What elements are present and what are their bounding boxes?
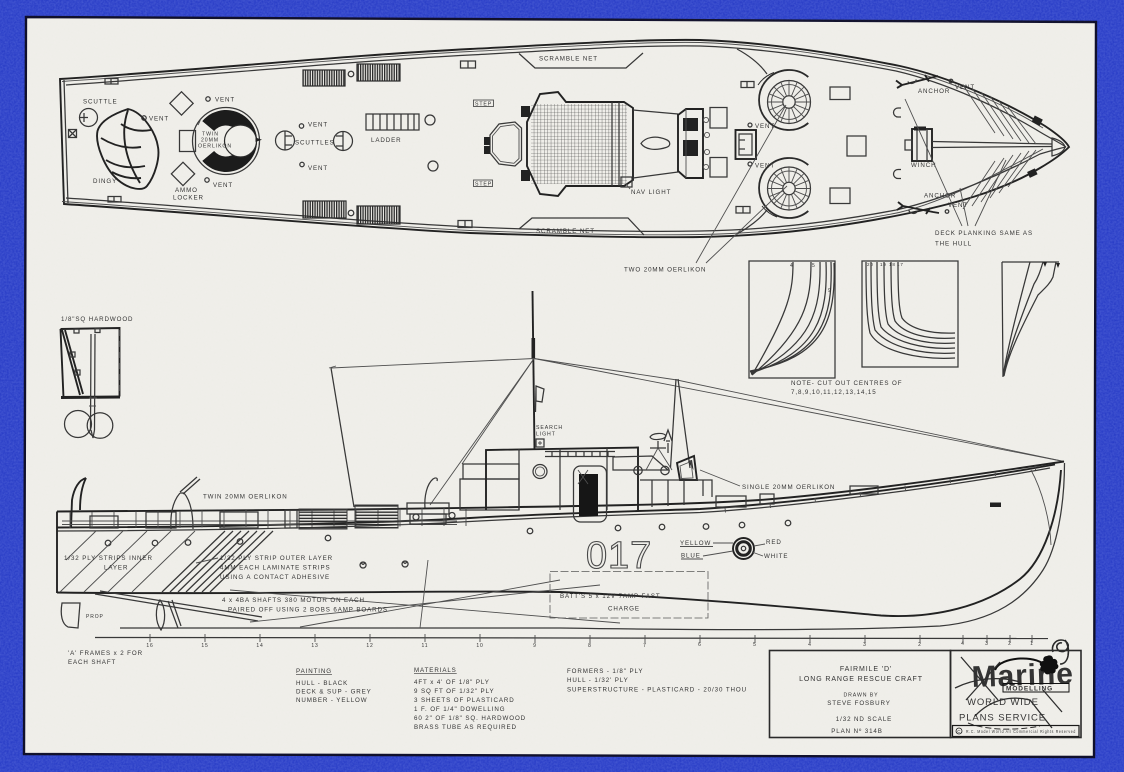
svg-text:SCRAMBLE NET: SCRAMBLE NET <box>539 56 598 63</box>
svg-text:MATERIALS: MATERIALS <box>414 667 457 674</box>
svg-text:8: 8 <box>588 643 592 649</box>
svg-text:VENT: VENT <box>308 122 328 129</box>
svg-text:1/32 PLY STRIPS INNER: 1/32 PLY STRIPS INNER <box>64 555 153 562</box>
svg-text:7: 7 <box>643 643 647 649</box>
svg-text:USING A CONTACT ADHESIVE: USING A CONTACT ADHESIVE <box>220 574 330 581</box>
svg-text:3: 3 <box>863 642 867 648</box>
svg-text:THE HULL: THE HULL <box>935 241 972 248</box>
svg-text:RED: RED <box>766 539 782 546</box>
svg-text:VENT: VENT <box>213 182 233 189</box>
svg-text:LIGHT: LIGHT <box>536 432 556 438</box>
svg-text:15: 15 <box>201 643 208 649</box>
svg-text:20: 20 <box>867 262 874 267</box>
svg-text:SCUTTLES: SCUTTLES <box>295 140 335 147</box>
svg-text:4: 4 <box>790 263 794 269</box>
svg-text:BATT'S 5 x 12V 7AMP FAST: BATT'S 5 x 12V 7AMP FAST <box>560 593 661 600</box>
svg-text:TWO 20MM OERLIKON: TWO 20MM OERLIKON <box>624 267 706 274</box>
svg-text:1 F. OF 1/4" DOWELLING: 1 F. OF 1/4" DOWELLING <box>414 706 505 713</box>
svg-text:C: C <box>957 729 961 734</box>
svg-text:PROP: PROP <box>86 614 104 620</box>
svg-text:60 2" OF 1/8" SQ. HARDWOOD: 60 2" OF 1/8" SQ. HARDWOOD <box>414 715 526 722</box>
svg-text:5: 5 <box>812 263 816 269</box>
svg-text:LADDER: LADDER <box>371 137 402 144</box>
svg-text:4: 4 <box>961 641 965 647</box>
svg-text:13: 13 <box>311 643 318 649</box>
svg-text:NAV LIGHT: NAV LIGHT <box>631 189 671 196</box>
svg-text:10: 10 <box>476 643 483 649</box>
svg-text:ANCHOR: ANCHOR <box>924 193 956 200</box>
svg-text:11: 11 <box>422 643 429 649</box>
svg-text:DECK PLANKING SAME AS: DECK PLANKING SAME AS <box>935 230 1033 237</box>
svg-text:DRAWN BY: DRAWN BY <box>844 693 879 699</box>
svg-text:5: 5 <box>753 642 757 648</box>
svg-text:'A' FRAMES x 2 FOR: 'A' FRAMES x 2 FOR <box>68 650 143 657</box>
svg-text:DINGY: DINGY <box>93 178 117 185</box>
svg-text:BRASS TUBE AS REQUIRED: BRASS TUBE AS REQUIRED <box>414 724 517 731</box>
svg-text:EACH SHAFT: EACH SHAFT <box>68 659 116 666</box>
svg-text:VENT: VENT <box>755 163 775 170</box>
svg-text:4FT x 4' OF 1/8" PLY: 4FT x 4' OF 1/8" PLY <box>414 679 490 686</box>
svg-text:4: 4 <box>808 642 812 648</box>
svg-text:PAINTING: PAINTING <box>296 668 332 675</box>
svg-text:STEVE FOSBURY: STEVE FOSBURY <box>827 700 891 707</box>
svg-text:WORLD WIDE: WORLD WIDE <box>967 697 1039 708</box>
svg-text:19 18: 19 18 <box>880 262 896 267</box>
svg-text:3 SHEETS OF PLASTICARD: 3 SHEETS OF PLASTICARD <box>414 697 515 704</box>
svg-text:OERLIKON: OERLIKON <box>198 144 232 150</box>
svg-text:1/32 PLY STRIP OUTER LAYER: 1/32 PLY STRIP OUTER LAYER <box>220 555 333 562</box>
svg-text:4MM EACH LAMINATE STRIPS: 4MM EACH LAMINATE STRIPS <box>220 565 331 572</box>
svg-text:VENT: VENT <box>149 116 169 123</box>
svg-text:CHARGE: CHARGE <box>608 606 640 613</box>
svg-text:16: 16 <box>146 643 153 649</box>
svg-text:9 SQ FT OF 1/32" PLY: 9 SQ FT OF 1/32" PLY <box>414 688 495 695</box>
svg-text:SUPERSTRUCTURE - PLASTICARD -: SUPERSTRUCTURE - PLASTICARD - 20/30 THOU <box>567 687 747 694</box>
svg-text:NUMBER - YELLOW: NUMBER - YELLOW <box>296 697 368 704</box>
svg-text:2: 2 <box>1008 641 1012 647</box>
svg-text:7,8,9,10,11,12,13,14,15: 7,8,9,10,11,12,13,14,15 <box>791 389 877 396</box>
svg-text:SINGLE 20MM OERLIKON: SINGLE 20MM OERLIKON <box>742 484 835 491</box>
svg-text:WHITE: WHITE <box>764 553 788 560</box>
svg-text:SCUTTLE: SCUTTLE <box>83 99 118 106</box>
svg-text:LOCKER: LOCKER <box>173 195 204 202</box>
svg-text:ANCHOR: ANCHOR <box>918 88 950 95</box>
svg-text:PLAN Nº 314B: PLAN Nº 314B <box>831 728 883 735</box>
svg-text:PAIRED OFF USING 2 BOBS 6AMP B: PAIRED OFF USING 2 BOBS 6AMP BOARDS <box>228 607 388 614</box>
svg-text:SEARCH: SEARCH <box>536 425 563 431</box>
svg-text:NOTE- CUT OUT CENTRES OF: NOTE- CUT OUT CENTRES OF <box>791 380 902 387</box>
svg-text:9: 9 <box>533 643 537 649</box>
svg-text:HULL - 1/32' PLY: HULL - 1/32' PLY <box>567 677 629 684</box>
svg-text:AMMO: AMMO <box>175 187 198 194</box>
svg-text:LAYER: LAYER <box>104 565 128 572</box>
svg-text:SCRAMBLE NET: SCRAMBLE NET <box>536 228 595 235</box>
svg-text:1: 1 <box>1030 641 1034 647</box>
svg-text:R.C. Model World All Commercia: R.C. Model World All Commercial Rights R… <box>966 729 1076 734</box>
svg-text:2: 2 <box>918 642 922 648</box>
svg-text:DECK & SUP - GREY: DECK & SUP - GREY <box>296 689 372 696</box>
svg-text:PLANS SERVICE: PLANS SERVICE <box>959 713 1046 724</box>
svg-text:9: 9 <box>828 288 832 294</box>
svg-text:FORMERS - 1/8" PLY: FORMERS - 1/8" PLY <box>567 668 643 675</box>
svg-text:017: 017 <box>586 535 652 577</box>
svg-text:HULL - BLACK: HULL - BLACK <box>296 680 348 687</box>
svg-text:VENT: VENT <box>308 165 328 172</box>
svg-text:WINCH: WINCH <box>911 162 936 169</box>
svg-text:6: 6 <box>698 642 702 648</box>
svg-text:BLUE: BLUE <box>681 553 701 560</box>
svg-text:YELLOW: YELLOW <box>680 540 711 547</box>
svg-text:TWIN 20MM OERLIKON: TWIN 20MM OERLIKON <box>203 494 288 501</box>
svg-text:1/8"SQ HARDWOOD: 1/8"SQ HARDWOOD <box>61 316 133 323</box>
svg-text:LONG RANGE RESCUE CRAFT: LONG RANGE RESCUE CRAFT <box>799 676 923 683</box>
svg-text:14: 14 <box>256 643 263 649</box>
svg-text:FAIRMILE 'D': FAIRMILE 'D' <box>840 666 892 673</box>
svg-text:3: 3 <box>985 641 989 647</box>
svg-text:VENT: VENT <box>215 97 235 104</box>
svg-text:4 x 4BA SHAFTS 380 MOTOR ON EA: 4 x 4BA SHAFTS 380 MOTOR ON EACH <box>222 597 365 604</box>
svg-text:12: 12 <box>366 643 373 649</box>
svg-text:17: 17 <box>897 262 904 267</box>
svg-text:MODELLING: MODELLING <box>1006 686 1053 693</box>
svg-text:1/32 ND SCALE: 1/32 ND SCALE <box>836 716 892 723</box>
